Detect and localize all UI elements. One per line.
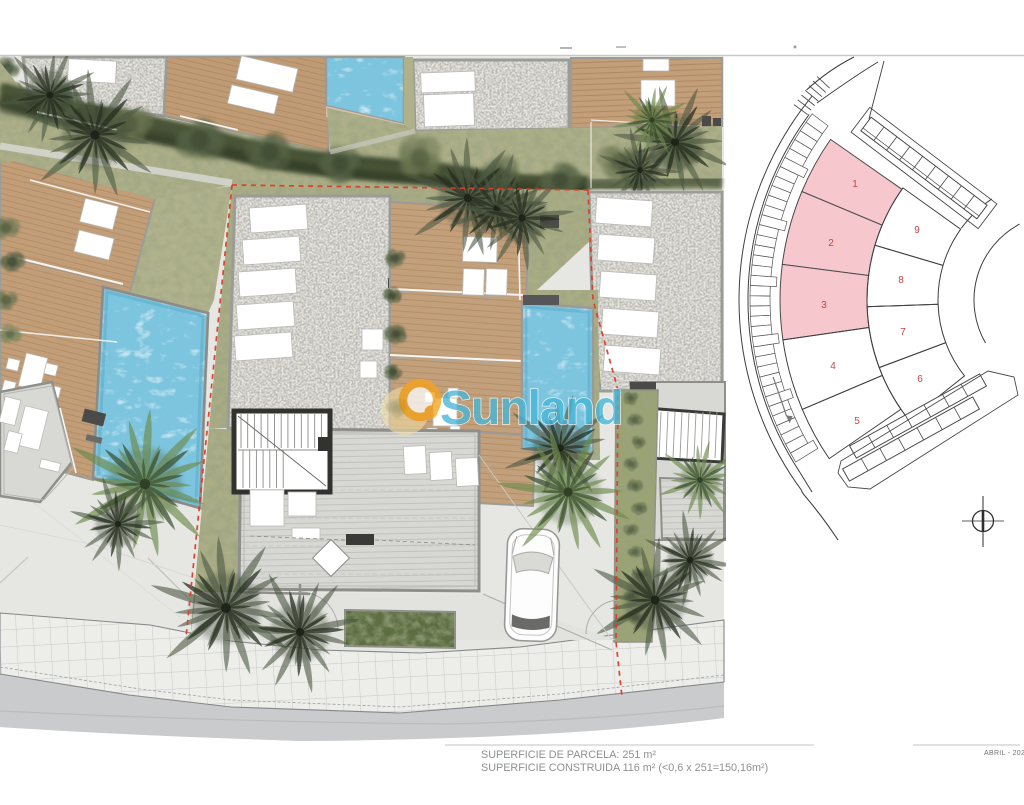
svg-text:®: ® (617, 387, 625, 398)
svg-text:ABRIL - 202: ABRIL - 202 (984, 750, 1024, 757)
svg-text:3: 3 (821, 300, 827, 311)
svg-text:SUPERFICIE DE PARCELA: 251 m²: SUPERFICIE DE PARCELA: 251 m² (481, 749, 656, 761)
svg-text:SUPERFICIE CONSTRUIDA 116 m² (: SUPERFICIE CONSTRUIDA 116 m² (<0,6 x 251… (481, 762, 768, 774)
svg-text:7: 7 (900, 327, 906, 338)
svg-text:5: 5 (854, 416, 860, 427)
svg-text:1: 1 (852, 179, 858, 190)
svg-text:6: 6 (917, 374, 923, 385)
svg-text:2: 2 (828, 238, 834, 249)
svg-text:Sunland: Sunland (440, 382, 622, 435)
svg-text:4: 4 (830, 361, 836, 372)
svg-text:8: 8 (898, 275, 904, 286)
svg-text:9: 9 (914, 225, 920, 236)
